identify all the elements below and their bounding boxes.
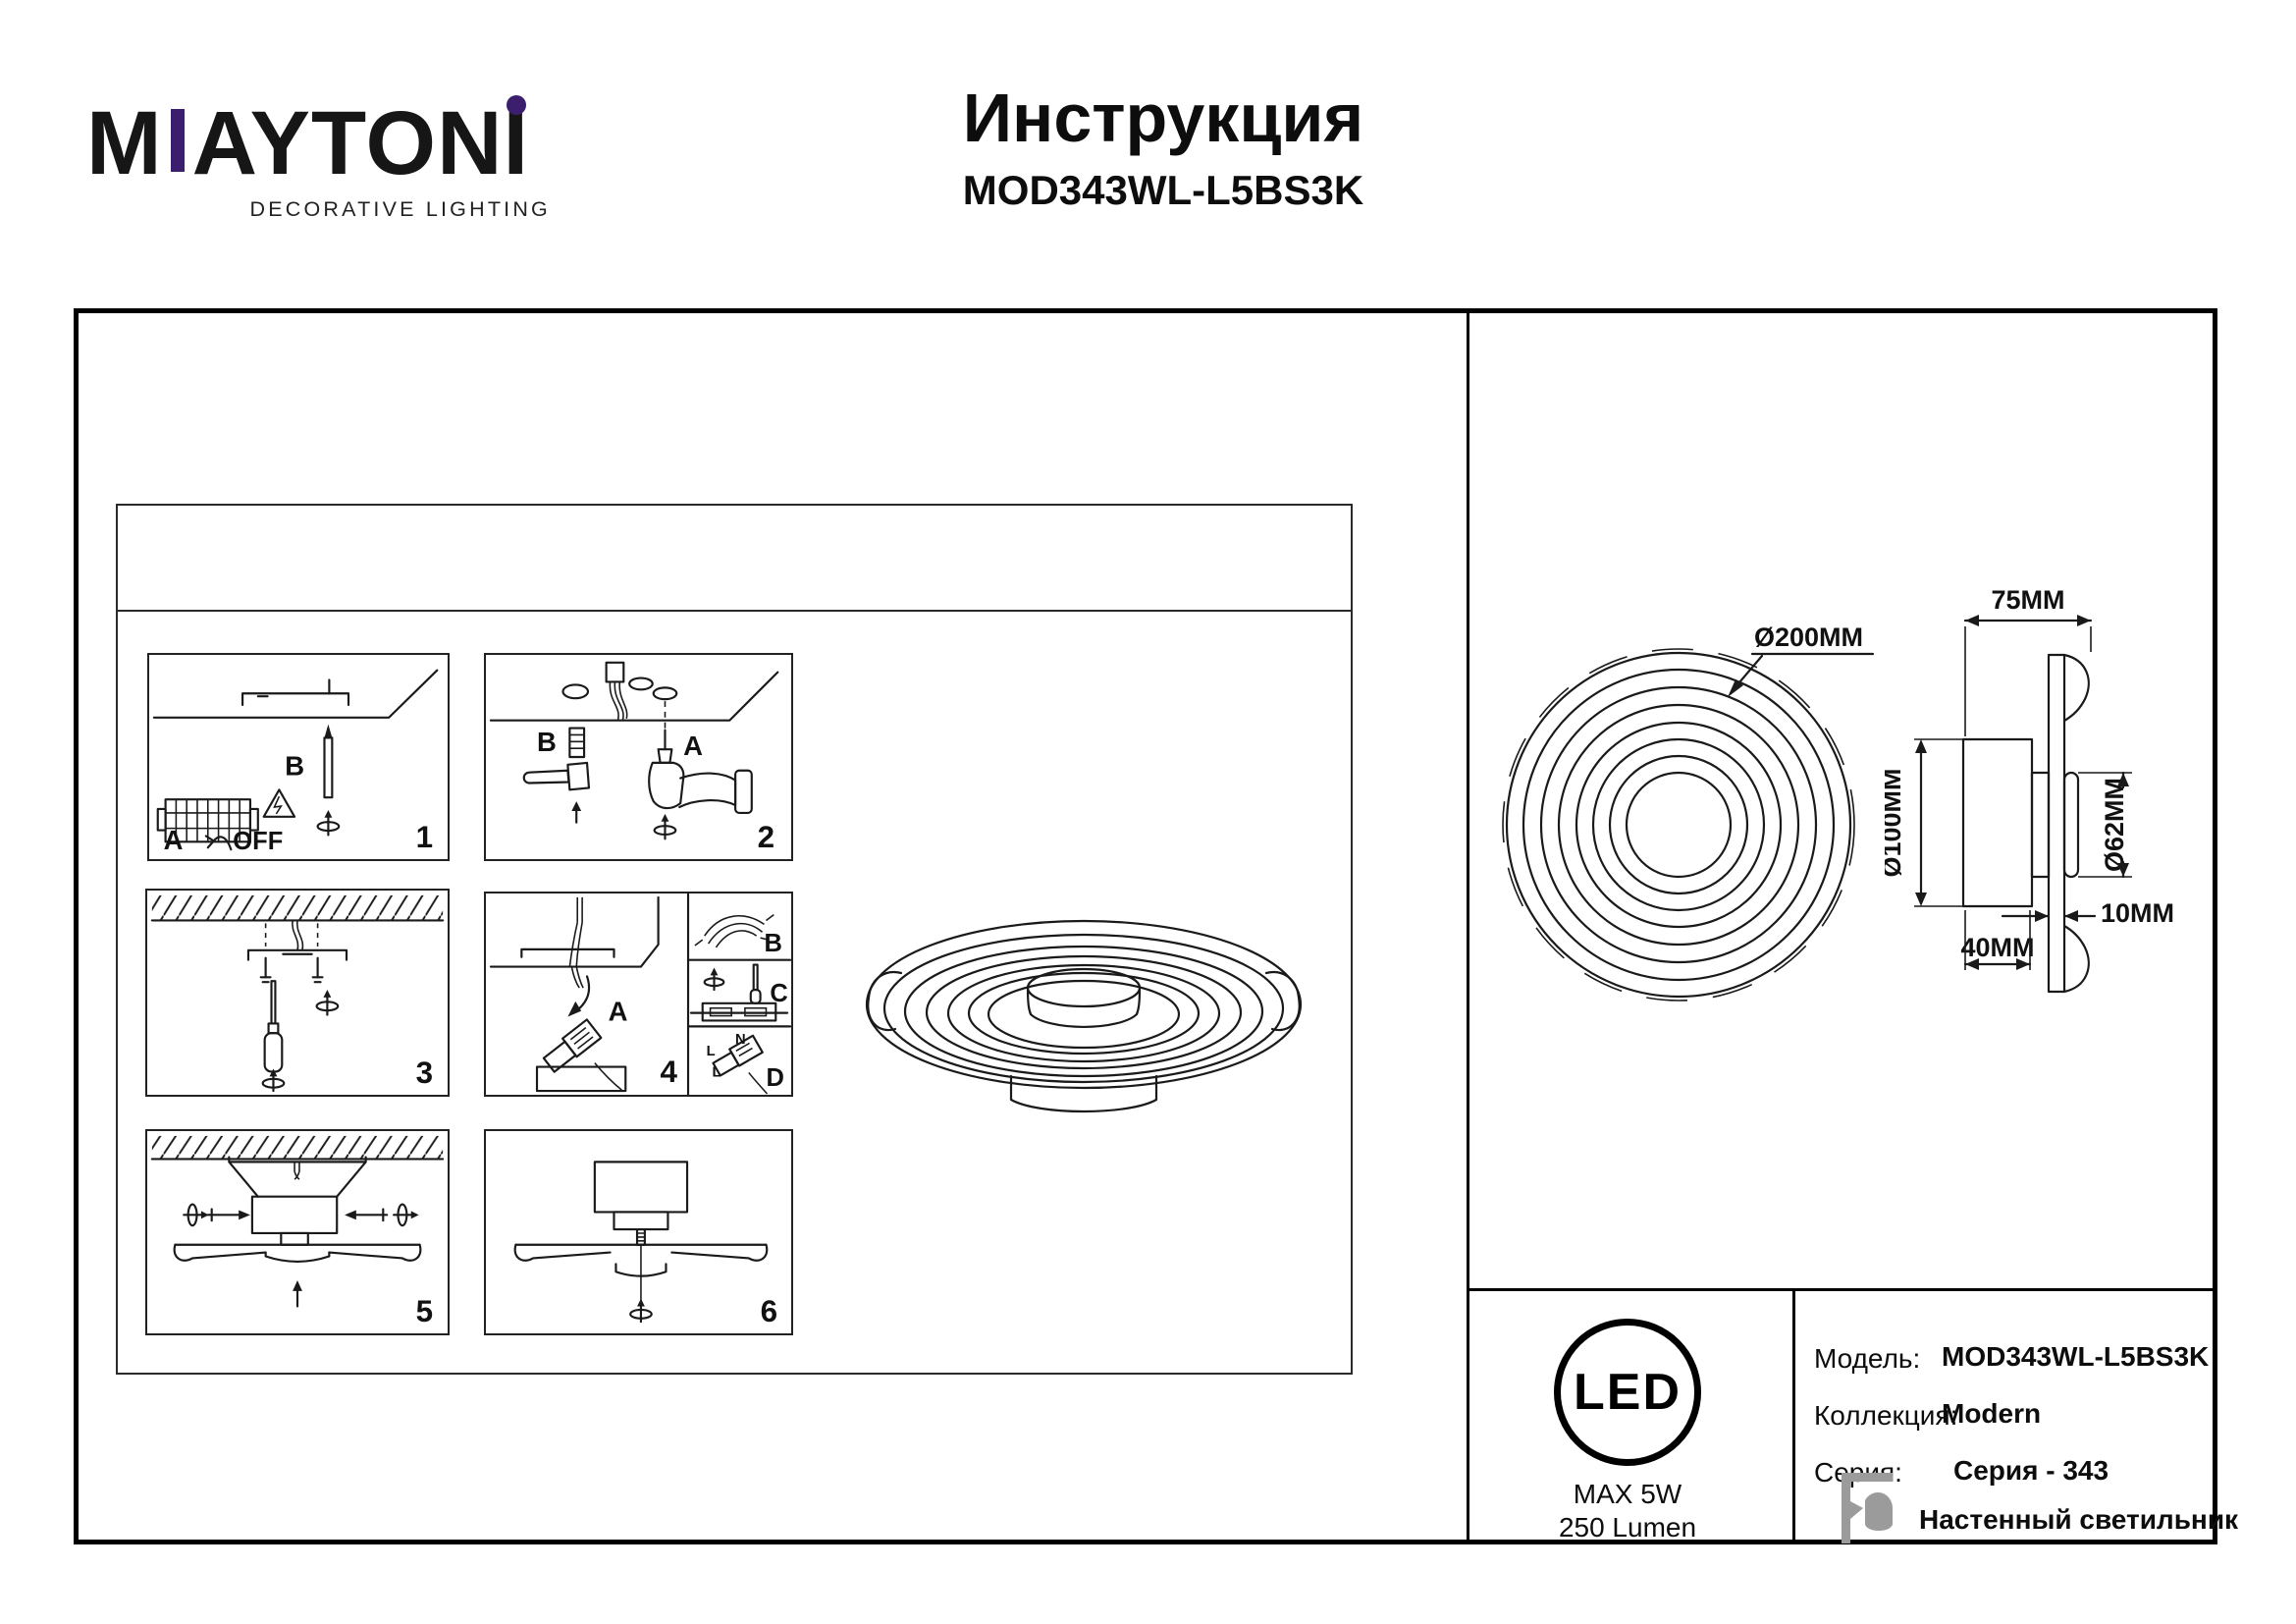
wires [293, 920, 303, 949]
pencil-icon [324, 737, 332, 797]
screw-icon [313, 958, 323, 983]
model-label: Модель: [1814, 1343, 1920, 1375]
screw-arrow [239, 1210, 250, 1219]
step-6-number: 6 [761, 1294, 777, 1328]
step-2-label-a: A [683, 731, 703, 761]
front-diameter-label: Ø200MM [1754, 623, 1863, 652]
drill-hole [654, 687, 677, 699]
wall-lamp-icon [1838, 1471, 1898, 1545]
drill-chuck [659, 749, 672, 763]
depth-label: 75MM [1991, 585, 2064, 615]
step-5-drawing: 5 [147, 1131, 448, 1333]
wall-hatch [152, 895, 443, 921]
rotate-icon [630, 1299, 652, 1323]
mounting-bracket [248, 950, 347, 960]
frame-center-divider [1467, 308, 1469, 1544]
wires [610, 681, 626, 720]
up-arrow [571, 801, 581, 811]
step-2-number: 2 [758, 820, 774, 854]
step-3-drawing: 3 [147, 891, 448, 1095]
side-view-svg: 75MM Ø100MM Ø62MM 10MM 40MM [1885, 579, 2238, 1031]
drill-hole [562, 684, 588, 698]
base-box [537, 1067, 625, 1092]
step-1-label-a: A [164, 825, 184, 855]
center-cap [1028, 969, 1140, 1027]
instruction-page: MAYTONI DECORATIVE LIGHTING Инструкция M… [0, 0, 2296, 1624]
terminal-n-label: N [735, 1032, 746, 1048]
back-plate [2049, 655, 2064, 992]
mounting-bracket [242, 693, 348, 705]
step-4-drawing: A 4 B C [486, 893, 791, 1095]
instruction-header-band [118, 506, 1351, 608]
step-1-label-b: B [285, 751, 304, 782]
hammer-head [567, 763, 589, 789]
led-badge: LED [1554, 1319, 1701, 1466]
screwdriver-icon [265, 981, 283, 1071]
base-diameter-label: Ø100MM [1885, 768, 1906, 877]
spec-section-top-divider [1468, 1288, 2217, 1291]
screw-icon [637, 1229, 645, 1303]
max-power-label: MAX 5W [1480, 1479, 1775, 1510]
wall-plug-icon [569, 729, 584, 757]
hammer-handle [524, 771, 569, 784]
drill-handle [679, 774, 735, 807]
driver-box [252, 1197, 337, 1233]
lamp-neck [281, 1233, 307, 1245]
step-1-off-label: OFF [233, 828, 283, 855]
type-value: Настенный светильник [1919, 1504, 2238, 1536]
step-3-panel: 3 [145, 889, 450, 1097]
rotate-icon [318, 810, 340, 836]
screw-icon [261, 958, 271, 983]
wire-connector [607, 663, 624, 682]
step-4-label-c: C [770, 980, 787, 1007]
rotate-icon [184, 1205, 209, 1226]
side-view-drawing: 75MM Ø100MM Ø62MM 10MM 40MM [1885, 579, 2238, 1031]
step-6-panel: 6 [484, 1129, 793, 1335]
step-4-number: 4 [661, 1055, 678, 1089]
wires [294, 1162, 299, 1179]
shade-bottom-curve [2064, 926, 2089, 992]
rotate-icon [655, 814, 676, 839]
wall-hatch [152, 1136, 443, 1160]
terminal-l2-label: L [713, 1064, 721, 1080]
step-5-number: 5 [416, 1294, 433, 1328]
shade-top-curve [2064, 655, 2089, 721]
step-4-label-a: A [609, 996, 628, 1026]
rotate-icon [394, 1205, 419, 1226]
step-5-panel: 5 [145, 1129, 450, 1335]
drill-hole [629, 678, 653, 690]
drill-body [649, 763, 683, 808]
drill-cap [735, 771, 752, 813]
ring-diameter-label: Ø62MM [2100, 778, 2129, 872]
logo-letter-i: I [504, 98, 530, 189]
plate-thickness-label: 10MM [2101, 898, 2174, 928]
pencil-tip [324, 725, 332, 738]
lamp-neck [614, 1212, 667, 1229]
twisted-wires-icon [695, 915, 774, 947]
lamp-illustration [862, 913, 1306, 1124]
led-badge-text: LED [1574, 1363, 1682, 1422]
page-model-subtitle: MOD343WL-L5BS3K [864, 167, 1463, 214]
step-2-drawing: B A 2 [486, 655, 791, 859]
luminous-flux-label: 250 Lumen [1480, 1512, 1775, 1543]
step-4-label-d: D [766, 1064, 783, 1092]
step-3-number: 3 [416, 1056, 433, 1090]
ring-62 [2064, 773, 2078, 877]
step-4-panel: A 4 B C [484, 892, 793, 1097]
rotate-icon [317, 990, 339, 1015]
collection-value: Modern [1942, 1398, 2041, 1430]
up-arrow [293, 1280, 302, 1291]
wires [569, 897, 583, 988]
terminal-l1-label: L [707, 1044, 716, 1059]
base-depth-label: 40MM [1960, 933, 2034, 962]
rotate-icon [705, 968, 724, 991]
step-2-panel: B A 2 [484, 653, 793, 861]
series-value: Серия - 343 [1953, 1455, 2109, 1487]
spec-cells-divider [1792, 1288, 1795, 1544]
driver-box [1963, 739, 2032, 906]
terminal-block [541, 1019, 601, 1073]
logo-accent-bar [171, 109, 185, 172]
step-4-label-b: B [765, 930, 782, 957]
front-view-svg: Ø200MM [1482, 589, 1875, 1060]
step-1-number: 1 [416, 820, 433, 854]
maytoni-logo: MAYTONI [86, 98, 529, 189]
instruction-sheet-header-line [116, 610, 1353, 612]
step-6-drawing: 6 [486, 1131, 791, 1333]
logo-letter-m: M [86, 98, 163, 189]
lamp-profile [175, 1245, 421, 1262]
ceiling-slab [491, 897, 659, 967]
step-1-drawing: B A OFF 1 [149, 655, 448, 859]
front-view-drawing: Ø200MM [1482, 589, 1875, 1060]
logo-tagline: DECORATIVE LIGHTING [86, 197, 551, 222]
collection-label: Коллекция: [1814, 1400, 1957, 1432]
mounting-bracket [521, 949, 614, 957]
screw-arrow [345, 1210, 356, 1219]
step-1-panel: B A OFF 1 [147, 653, 450, 861]
screwdriver-icon [751, 965, 761, 1003]
model-value: MOD343WL-L5BS3K [1942, 1341, 2209, 1373]
logo-letters-mid: AYTON [192, 98, 504, 189]
connector [2032, 773, 2049, 877]
page-title: Инструкция [864, 79, 1463, 157]
lamp-illustration-drawing [862, 913, 1306, 1124]
warning-triangle-icon [264, 789, 294, 816]
driver-box [595, 1162, 687, 1212]
rotate-icon [263, 1069, 285, 1092]
step-2-label-b: B [537, 727, 557, 757]
